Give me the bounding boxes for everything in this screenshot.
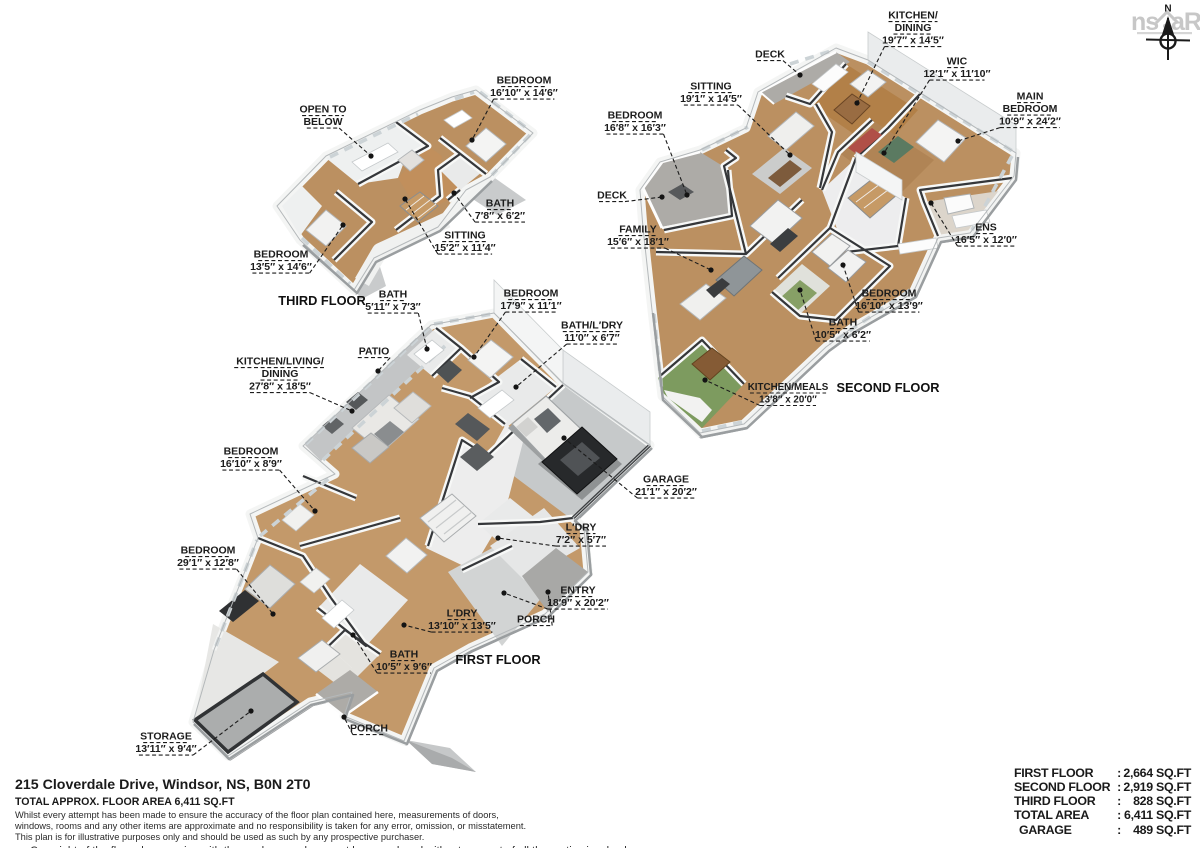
svg-text:windows, rooms and any other i: windows, rooms and any other items are a… — [14, 821, 526, 831]
svg-text:STORAGE: STORAGE — [140, 730, 192, 742]
svg-text:WIC: WIC — [947, 55, 968, 67]
svg-text:18′9″ x 20′2″: 18′9″ x 20′2″ — [547, 597, 609, 609]
svg-text:OPEN TO: OPEN TO — [299, 103, 346, 115]
svg-text:828 SQ.FT: 828 SQ.FT — [1133, 794, 1192, 808]
svg-text:GARAGE: GARAGE — [1019, 823, 1072, 837]
svg-text::: : — [1117, 794, 1121, 808]
svg-text:Whilst every attempt has been: Whilst every attempt has been made to en… — [15, 810, 499, 820]
svg-text:12′1″ x 11′10″: 12′1″ x 11′10″ — [923, 68, 990, 80]
svg-text:BEDROOM: BEDROOM — [497, 74, 552, 86]
svg-text:16′10″ x 14′6″: 16′10″ x 14′6″ — [490, 87, 558, 99]
svg-text:PATIO: PATIO — [359, 345, 390, 357]
svg-text:DECK: DECK — [597, 189, 627, 201]
svg-text:10′9″ x 24′2″: 10′9″ x 24′2″ — [999, 115, 1061, 127]
svg-text:THIRD FLOOR: THIRD FLOOR — [278, 293, 365, 308]
svg-text:TOTAL APPROX. FLOOR AREA 6,411: TOTAL APPROX. FLOOR AREA 6,411 SQ.FT — [15, 796, 235, 808]
svg-text:BEDROOM: BEDROOM — [254, 248, 309, 260]
svg-text:N: N — [1164, 4, 1171, 15]
svg-text:16′8″ x 16′3″: 16′8″ x 16′3″ — [604, 122, 666, 134]
svg-text:21′1″ x 20′2″: 21′1″ x 20′2″ — [635, 486, 697, 498]
svg-text:PORCH: PORCH — [350, 722, 388, 734]
svg-text::: : — [1117, 766, 1121, 780]
svg-text:BATH: BATH — [829, 316, 857, 328]
svg-text:10′5″ x 6′2″: 10′5″ x 6′2″ — [815, 329, 871, 341]
svg-text:29′1″ x 12′8″: 29′1″ x 12′8″ — [177, 557, 239, 569]
svg-text:KITCHEN/: KITCHEN/ — [888, 9, 938, 21]
svg-text:DINING: DINING — [895, 22, 932, 34]
svg-text:ENTRY: ENTRY — [560, 584, 595, 596]
svg-text:BEDROOM: BEDROOM — [224, 445, 279, 457]
svg-text:FAMILY: FAMILY — [619, 223, 657, 235]
svg-text:16′5″ x 12′0″: 16′5″ x 12′0″ — [955, 234, 1017, 246]
svg-text:215 Cloverdale Drive, Windsor,: 215 Cloverdale Drive, Windsor, NS, B0N 2… — [15, 777, 311, 793]
svg-text:DECK: DECK — [755, 48, 785, 60]
svg-text:15′2″ x 11′4″: 15′2″ x 11′4″ — [434, 242, 495, 254]
svg-text:19′7″ x 14′5″: 19′7″ x 14′5″ — [882, 34, 944, 46]
svg-text:489 SQ.FT: 489 SQ.FT — [1133, 823, 1192, 837]
svg-text:5′11″ x 7′3″: 5′11″ x 7′3″ — [365, 301, 420, 313]
svg-text:BEDROOM: BEDROOM — [1003, 103, 1058, 115]
svg-text:BATH: BATH — [379, 288, 407, 300]
svg-text:2,664 SQ.FT: 2,664 SQ.FT — [1123, 766, 1191, 780]
svg-text:19′1″ x 14′5″: 19′1″ x 14′5″ — [680, 93, 742, 105]
svg-text::: : — [1117, 808, 1121, 822]
svg-text:27′8″ x 18′5″: 27′8″ x 18′5″ — [249, 380, 311, 392]
svg-text:15′6″ x 18′1″: 15′6″ x 18′1″ — [607, 236, 669, 248]
svg-text:BEDROOM: BEDROOM — [504, 287, 559, 299]
svg-text:This plan is for illustrative: This plan is for illustrative purposes o… — [15, 832, 424, 842]
svg-text:MAIN: MAIN — [1017, 90, 1044, 102]
svg-text:KITCHEN/MEALS: KITCHEN/MEALS — [748, 382, 829, 393]
svg-text:16′10″ x 13′9″: 16′10″ x 13′9″ — [855, 300, 923, 312]
svg-text:7′8″ x 6′2″: 7′8″ x 6′2″ — [475, 210, 525, 222]
svg-text:13′5″ x 14′6″: 13′5″ x 14′6″ — [250, 261, 312, 273]
svg-text:SECOND FLOOR: SECOND FLOOR — [1014, 780, 1111, 794]
svg-text:SECOND FLOOR: SECOND FLOOR — [836, 380, 939, 395]
svg-text:SITTING: SITTING — [690, 80, 731, 92]
svg-text:BEDROOM: BEDROOM — [181, 544, 236, 556]
svg-text:FIRST FLOOR: FIRST FLOOR — [455, 652, 540, 667]
svg-text:17′9″ x 11′1″: 17′9″ x 11′1″ — [500, 300, 561, 312]
svg-text:BEDROOM: BEDROOM — [608, 109, 663, 121]
svg-text:ns: ns — [1131, 8, 1158, 36]
svg-text:7′2″ x 5′7″: 7′2″ x 5′7″ — [556, 534, 606, 546]
svg-text:11′0″ x 6′7″: 11′0″ x 6′7″ — [564, 332, 619, 344]
svg-text:16′10″ x 8′9″: 16′10″ x 8′9″ — [220, 458, 282, 470]
svg-text:BATH/L′DRY: BATH/L′DRY — [561, 319, 623, 331]
svg-text:L′DRY: L′DRY — [566, 521, 597, 533]
svg-text:BATH: BATH — [390, 648, 418, 660]
svg-text:TOTAL AREA: TOTAL AREA — [1014, 808, 1089, 822]
svg-text:KITCHEN/LIVING/: KITCHEN/LIVING/ — [236, 355, 324, 367]
svg-text:10′5″ x 9′6″: 10′5″ x 9′6″ — [376, 661, 432, 673]
svg-text:SITTING: SITTING — [444, 229, 485, 241]
svg-text:13′10″ x 13′5″: 13′10″ x 13′5″ — [428, 620, 496, 632]
svg-text:GARAGE: GARAGE — [643, 473, 689, 485]
svg-text::: : — [1117, 823, 1121, 837]
svg-text:FIRST FLOOR: FIRST FLOOR — [1014, 766, 1094, 780]
svg-text::: : — [1117, 780, 1121, 794]
svg-text:PORCH: PORCH — [517, 613, 555, 625]
svg-text:BELOW: BELOW — [303, 116, 342, 128]
svg-text:DINING: DINING — [262, 368, 299, 380]
svg-text:13′8″ x 20′0″: 13′8″ x 20′0″ — [759, 394, 817, 405]
svg-text:L′DRY: L′DRY — [447, 607, 478, 619]
svg-text:THIRD FLOOR: THIRD FLOOR — [1014, 794, 1096, 808]
svg-text:ENS: ENS — [975, 221, 997, 233]
svg-text:2,919 SQ.FT: 2,919 SQ.FT — [1123, 780, 1191, 794]
svg-text:BEDROOM: BEDROOM — [862, 287, 917, 299]
svg-text:13′11″ x 9′4″: 13′11″ x 9′4″ — [135, 743, 196, 755]
svg-text:6,411 SQ.FT: 6,411 SQ.FT — [1124, 808, 1192, 822]
svg-text:BATH: BATH — [486, 197, 514, 209]
